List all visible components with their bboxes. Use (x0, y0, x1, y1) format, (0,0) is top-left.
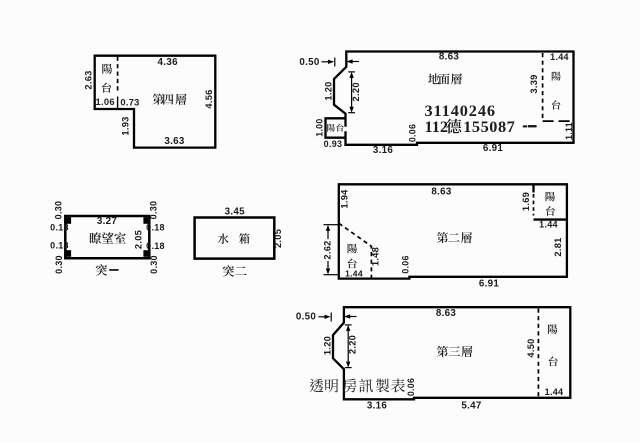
svg-text:3.39: 3.39 (529, 74, 539, 93)
svg-text:0.73: 0.73 (120, 98, 139, 108)
svg-text:1.44: 1.44 (345, 269, 363, 279)
svg-text:0.06: 0.06 (408, 124, 418, 142)
svg-text:4.36: 4.36 (158, 57, 179, 68)
svg-text:1.44: 1.44 (545, 387, 564, 397)
svg-text:6.91: 6.91 (483, 143, 504, 154)
svg-text:2.20: 2.20 (351, 82, 361, 101)
svg-text:0.06: 0.06 (406, 378, 416, 396)
svg-text:3.27: 3.27 (97, 216, 118, 227)
svg-text:1.93: 1.93 (121, 116, 131, 135)
svg-text:1.20: 1.20 (324, 81, 334, 100)
svg-text:8.63: 8.63 (436, 308, 457, 319)
svg-text:2.05: 2.05 (273, 229, 283, 248)
svg-text:3.45: 3.45 (225, 206, 246, 217)
svg-text:2.81: 2.81 (553, 237, 563, 256)
svg-text:1.94: 1.94 (340, 189, 350, 209)
svg-text:6.91: 6.91 (479, 279, 500, 290)
svg-text:1.00: 1.00 (314, 118, 324, 136)
svg-text:1.20: 1.20 (323, 336, 333, 355)
svg-text:0.18: 0.18 (50, 241, 69, 251)
svg-text:0.30: 0.30 (149, 255, 159, 274)
svg-text:2.63: 2.63 (84, 70, 94, 89)
svg-text:0.50: 0.50 (299, 57, 320, 68)
svg-text:155087: 155087 (463, 117, 515, 136)
svg-text:0.30: 0.30 (54, 255, 64, 274)
svg-text:1.44: 1.44 (550, 52, 569, 62)
svg-text:1.44: 1.44 (539, 220, 558, 230)
svg-text:0.18: 0.18 (146, 241, 165, 251)
svg-text:4.50: 4.50 (526, 338, 536, 357)
svg-text:0.93: 0.93 (324, 139, 343, 149)
svg-text:112: 112 (425, 117, 449, 136)
svg-text:0.18: 0.18 (50, 222, 69, 232)
svg-text:1.06: 1.06 (96, 97, 115, 107)
svg-text:0.18: 0.18 (146, 222, 165, 232)
svg-text:3.63: 3.63 (164, 136, 185, 147)
svg-text:0.30: 0.30 (149, 201, 159, 220)
svg-text:2.20: 2.20 (347, 335, 357, 354)
svg-text:5.47: 5.47 (461, 401, 482, 412)
svg-text:0.06: 0.06 (401, 255, 411, 273)
svg-text:8.63: 8.63 (431, 186, 452, 197)
svg-text:1.11: 1.11 (564, 122, 574, 140)
svg-text:1.69: 1.69 (521, 192, 531, 211)
svg-text:3.16: 3.16 (373, 145, 394, 156)
svg-text:2.05: 2.05 (134, 230, 144, 249)
svg-text:0.50: 0.50 (296, 312, 317, 323)
svg-text:1.48: 1.48 (371, 247, 381, 266)
svg-text:3.16: 3.16 (367, 401, 388, 412)
svg-text:4.56: 4.56 (204, 89, 214, 108)
svg-text:8.63: 8.63 (439, 51, 460, 62)
svg-text:0.30: 0.30 (54, 201, 64, 220)
svg-text:2.62: 2.62 (323, 240, 333, 259)
